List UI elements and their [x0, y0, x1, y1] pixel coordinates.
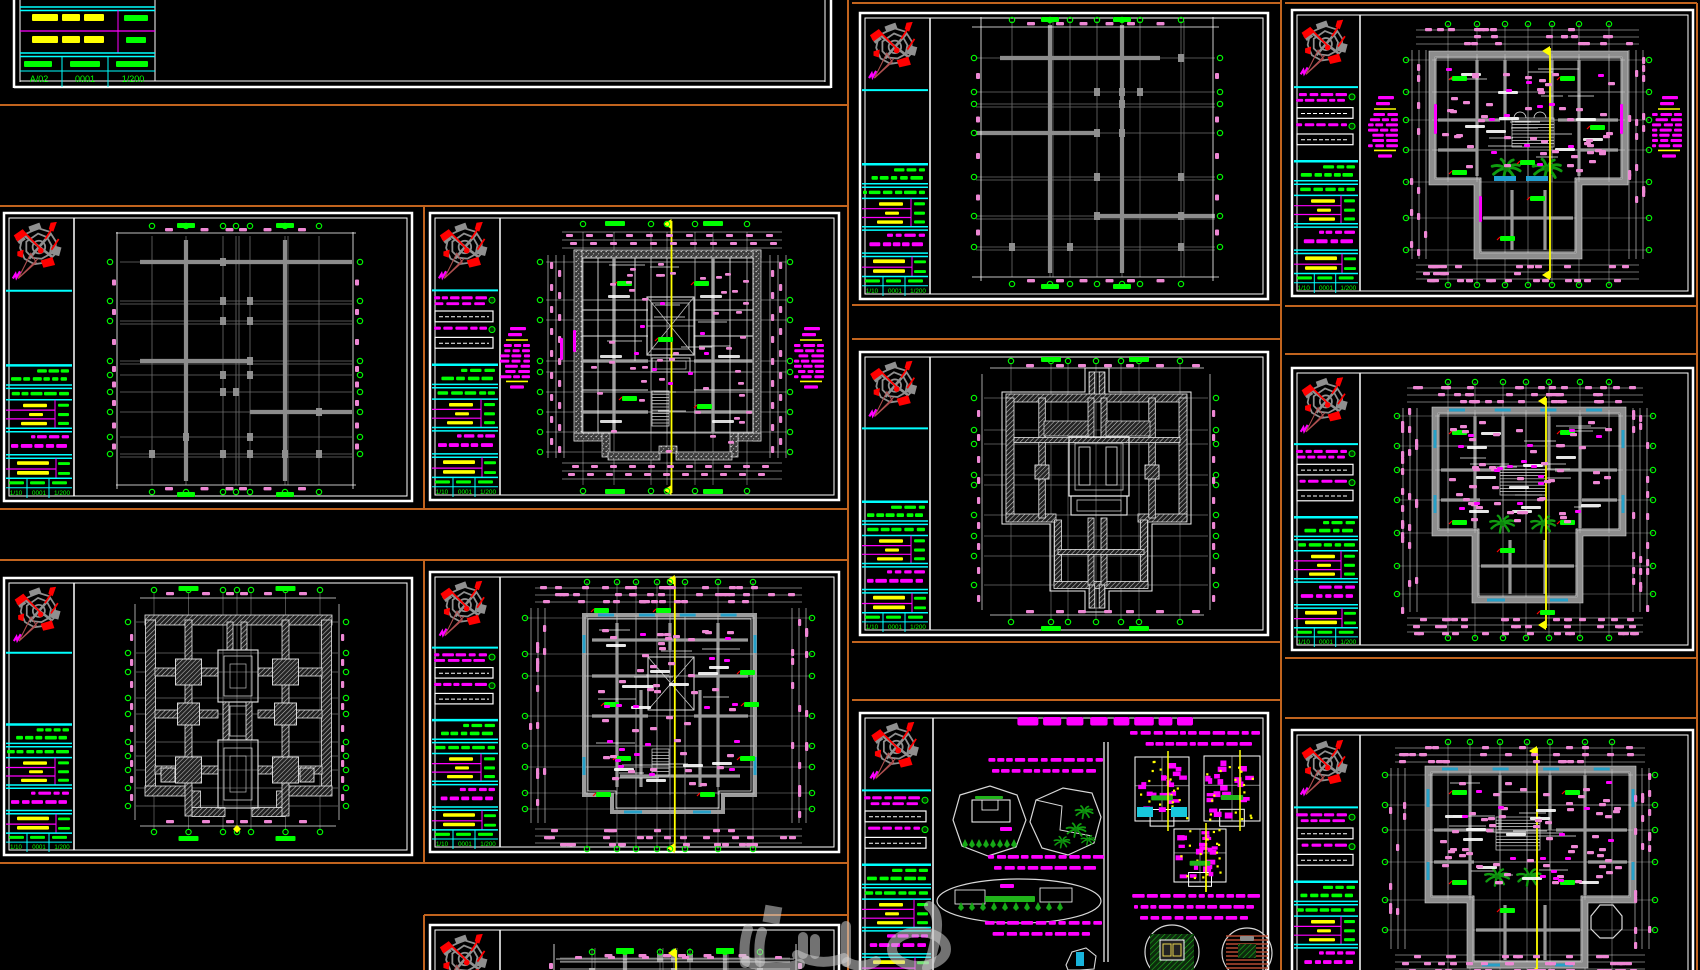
svg-text:0001: 0001 [1319, 285, 1334, 292]
svg-text:0001: 0001 [75, 74, 95, 84]
svg-text:1/200: 1/200 [54, 490, 70, 497]
svg-text:1/10: 1/10 [10, 844, 22, 851]
svg-text:1/200: 1/200 [910, 624, 926, 631]
svg-text:1/10: 1/10 [1298, 285, 1311, 292]
svg-text:0001: 0001 [888, 624, 903, 631]
svg-text:1/10: 1/10 [436, 489, 449, 496]
svg-text:1/200: 1/200 [480, 489, 496, 496]
svg-text:1/10: 1/10 [1298, 639, 1311, 646]
svg-text:0001: 0001 [458, 841, 472, 848]
svg-text:0001: 0001 [888, 288, 903, 295]
svg-text:1/10: 1/10 [866, 288, 879, 295]
svg-text:1/200: 1/200 [480, 841, 496, 848]
svg-text:1/200: 1/200 [910, 288, 926, 295]
svg-text:1/200: 1/200 [1340, 285, 1356, 292]
svg-text:1/10: 1/10 [10, 490, 23, 497]
svg-text:1/200: 1/200 [1340, 639, 1356, 646]
svg-text:1/200: 1/200 [54, 844, 70, 851]
svg-text:1/10: 1/10 [866, 624, 879, 631]
svg-text:0001: 0001 [32, 844, 46, 851]
svg-text:1/10: 1/10 [436, 841, 449, 848]
svg-text:A/02: A/02 [30, 74, 49, 84]
svg-text:0001: 0001 [1319, 639, 1334, 646]
svg-text:0001: 0001 [32, 490, 47, 497]
svg-text:1/200: 1/200 [122, 74, 145, 84]
svg-text:0001: 0001 [458, 489, 473, 496]
